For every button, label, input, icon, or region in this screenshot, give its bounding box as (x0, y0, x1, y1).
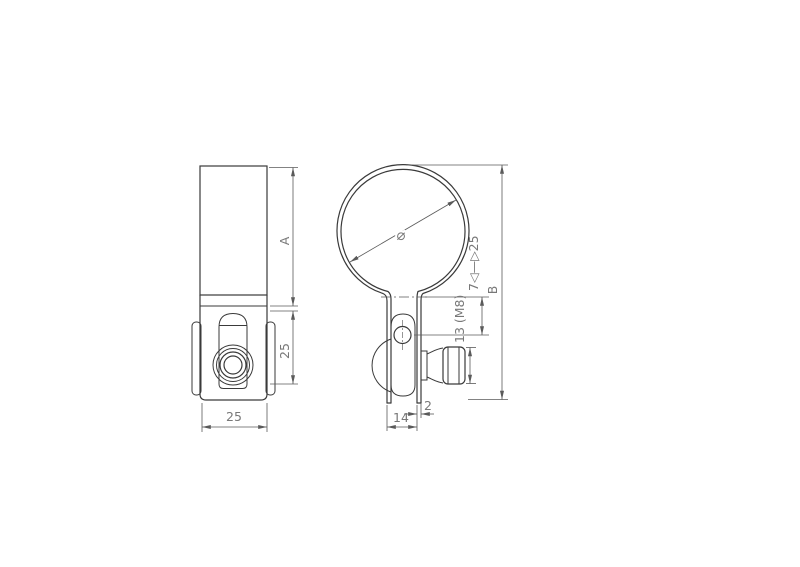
dim-label-b: B (485, 286, 500, 295)
clamp-body-outline (200, 295, 267, 400)
front-view (192, 166, 275, 400)
dim-label-nut-size: 13 (M8) (452, 295, 467, 343)
bolt-neck-top (427, 348, 443, 354)
knob-face-ring (217, 349, 250, 382)
dim-label-25-width: 25 (226, 409, 242, 424)
dim-label-clamp-range: 7◁—▷25 (466, 235, 481, 291)
strap-slot (219, 314, 247, 389)
bolt-neck-bottom (427, 377, 443, 383)
tube-outline (200, 166, 267, 295)
dim-label-diameter: ⌀ (396, 226, 405, 244)
knob-face-bore (224, 356, 242, 374)
wing-nut-outline (443, 347, 465, 384)
dim-label-thickness: 2 (424, 398, 432, 413)
dim-label-a: A (277, 236, 292, 245)
dim-label-25-vertical: 25 (277, 343, 292, 359)
side-view (337, 165, 469, 403)
drawing-canvas: A 25 25 ⌀ B 7◁—▷25 13 (M8) 2 14 (0, 0, 800, 567)
bolt-flange (421, 351, 427, 380)
band-outer-profile (337, 165, 469, 403)
nut-barrel-bulge (372, 339, 391, 392)
band-inner-profile (341, 169, 465, 403)
technical-drawing: A 25 25 ⌀ B 7◁—▷25 13 (M8) 2 14 (0, 0, 800, 567)
dim-label-leg-width: 14 (393, 410, 409, 425)
